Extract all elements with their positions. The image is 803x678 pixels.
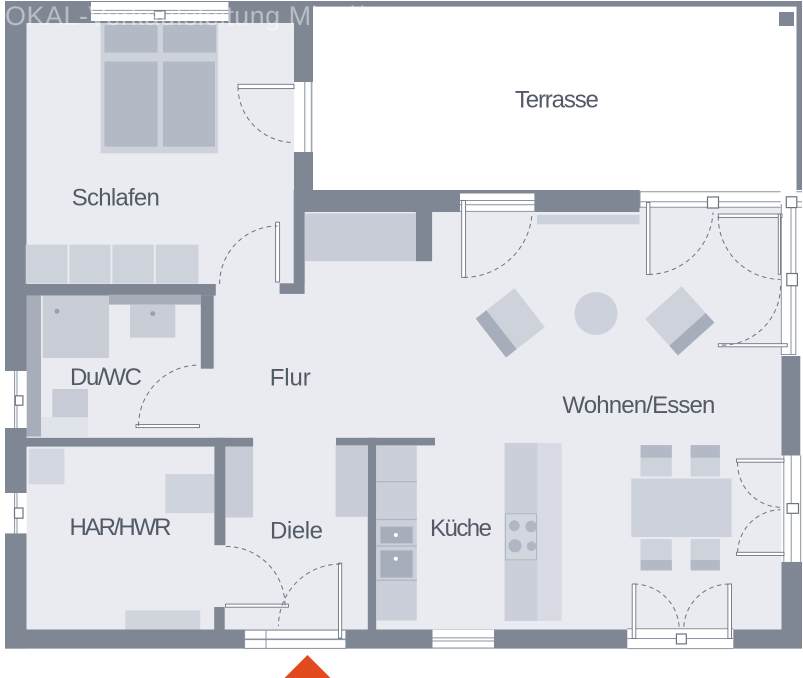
svg-text:OKAL-Verkaufsleitung Mittel/We: OKAL-Verkaufsleitung Mittel/West bbox=[5, 1, 427, 31]
svg-text:Du/WC: Du/WC bbox=[70, 364, 142, 391]
svg-text:Wohnen/Essen: Wohnen/Essen bbox=[562, 392, 715, 419]
svg-text:Flur: Flur bbox=[270, 364, 311, 391]
svg-text:Küche: Küche bbox=[430, 515, 492, 542]
svg-text:Terrasse: Terrasse bbox=[515, 87, 599, 114]
svg-text:Schlafen: Schlafen bbox=[72, 184, 160, 211]
svg-text:HAR/HWR: HAR/HWR bbox=[70, 514, 172, 541]
svg-text:Diele: Diele bbox=[270, 517, 323, 544]
